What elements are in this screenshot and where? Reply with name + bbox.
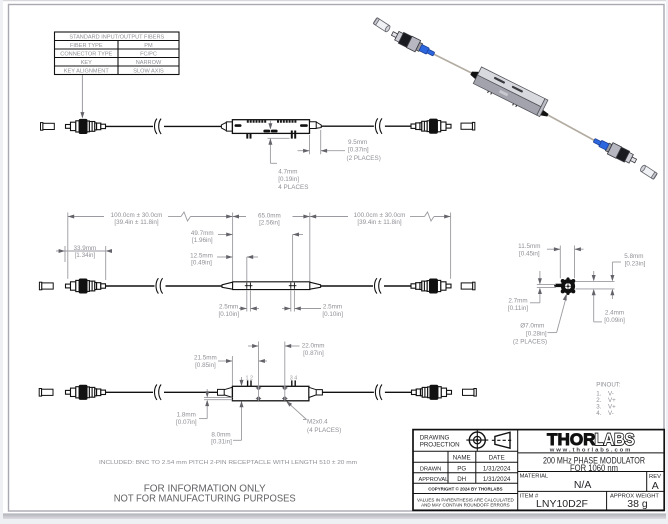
svg-text:100.0cm ± 30.0cm: 100.0cm ± 30.0cm (111, 212, 163, 219)
svg-text:4.7mm: 4.7mm (278, 168, 297, 175)
svg-text:[2.56in]: [2.56in] (259, 220, 280, 227)
svg-text:DRAWN: DRAWN (420, 466, 442, 472)
svg-text:N/A: N/A (574, 479, 592, 491)
svg-text:V-: V- (608, 410, 614, 417)
svg-text:[1.96in]: [1.96in] (192, 237, 213, 244)
svg-text:AND MAY CONTAIN ROUNDOFF ERROR: AND MAY CONTAIN ROUNDOFF ERRORS (421, 503, 510, 508)
svg-text:11.5mm: 11.5mm (518, 243, 540, 250)
svg-text:INCLUDED: BNC TO 2.54 mm PITCH: INCLUDED: BNC TO 2.54 mm PITCH 2-PIN REC… (99, 460, 357, 466)
svg-text:[0.09in]: [0.09in] (604, 317, 625, 324)
svg-text:[0.10in]: [0.10in] (322, 311, 343, 318)
svg-text:21.5mm: 21.5mm (194, 354, 217, 361)
svg-text:MATERIAL: MATERIAL (520, 473, 549, 479)
svg-text:38 g: 38 g (627, 498, 648, 510)
svg-text:PM: PM (144, 43, 153, 49)
svg-text:1/31/2024: 1/31/2024 (483, 465, 511, 472)
svg-text:FIBER TYPE: FIBER TYPE (70, 43, 103, 49)
svg-text:9.5mm: 9.5mm (348, 139, 367, 146)
svg-text:[1.34in]: [1.34in] (75, 252, 96, 259)
svg-text:[0.31in]: [0.31in] (211, 439, 232, 446)
svg-text:PINOUT:: PINOUT: (596, 381, 621, 388)
svg-text:2.5mm: 2.5mm (219, 303, 238, 310)
svg-text:KEY ALIGNMENT: KEY ALIGNMENT (64, 68, 110, 74)
svg-text:[0.45in]: [0.45in] (519, 250, 540, 257)
svg-text:49.7mm: 49.7mm (191, 230, 214, 237)
svg-text:NAME: NAME (453, 454, 471, 461)
svg-text:LABS: LABS (595, 430, 635, 449)
svg-text:2.5mm: 2.5mm (323, 303, 342, 310)
svg-text:3 4: 3 4 (290, 376, 298, 382)
svg-text:[0.19in]: [0.19in] (278, 176, 299, 183)
svg-text:2.4mm: 2.4mm (605, 309, 624, 316)
svg-text:KEY: KEY (81, 60, 92, 66)
svg-text:[0.87in]: [0.87in] (303, 350, 324, 357)
svg-text:[0.28in]: [0.28in] (526, 330, 547, 337)
svg-text:33.9mm: 33.9mm (74, 245, 97, 252)
svg-text:100.0cm ± 30.0cm: 100.0cm ± 30.0cm (354, 212, 406, 219)
svg-text:LNY10D2F: LNY10D2F (536, 498, 588, 510)
svg-text:FC/PC: FC/PC (140, 51, 157, 57)
svg-text:DRAWING: DRAWING (420, 435, 450, 442)
svg-text:STANDARD INPUT/OUTPUT FIBERS: STANDARD INPUT/OUTPUT FIBERS (69, 34, 164, 40)
svg-text:1 2: 1 2 (246, 376, 254, 382)
svg-text:PG: PG (457, 465, 466, 472)
svg-text:PROJECTION: PROJECTION (420, 442, 460, 449)
svg-text:NARROW: NARROW (136, 60, 162, 66)
svg-text:4.: 4. (596, 410, 601, 417)
svg-text:[0.49in]: [0.49in] (191, 259, 212, 266)
svg-text:[0.07in]: [0.07in] (176, 419, 197, 426)
svg-text:[39.4in ± 11.8in]: [39.4in ± 11.8in] (114, 219, 159, 226)
svg-text:(4 PLACES): (4 PLACES) (307, 427, 341, 434)
svg-text:DH: DH (457, 476, 466, 483)
svg-text:FOR 1060 nm: FOR 1060 nm (570, 463, 618, 473)
svg-text:5.8mm: 5.8mm (624, 253, 643, 260)
svg-text:(2 PLACES): (2 PLACES) (347, 155, 381, 162)
svg-text:DATE: DATE (489, 454, 505, 461)
svg-text:12.5mm: 12.5mm (190, 252, 213, 259)
svg-text:M2x0.4: M2x0.4 (307, 419, 328, 426)
svg-text:NOT FOR MANUFACTURING PURPOSES: NOT FOR MANUFACTURING PURPOSES (114, 494, 296, 505)
svg-text:APPROVAL: APPROVAL (419, 477, 449, 483)
svg-text:1.8mm: 1.8mm (177, 411, 196, 418)
svg-text:4 PLACES: 4 PLACES (278, 184, 308, 191)
svg-text:[0.85in]: [0.85in] (195, 362, 216, 369)
svg-text:THOR: THOR (547, 430, 596, 449)
svg-text:A: A (652, 480, 659, 492)
svg-text:Ø7.0mm: Ø7.0mm (520, 323, 544, 330)
svg-text:[0.11in]: [0.11in] (508, 305, 528, 312)
svg-text:[39.4in ± 11.8in]: [39.4in ± 11.8in] (357, 219, 402, 226)
svg-text:22.0mm: 22.0mm (302, 342, 325, 349)
svg-text:[0.37in]: [0.37in] (348, 147, 369, 154)
svg-text:[0.10in]: [0.10in] (218, 311, 239, 318)
svg-text:CONNECTOR TYPE: CONNECTOR TYPE (60, 51, 112, 57)
svg-text:SLOW AXIS: SLOW AXIS (133, 68, 164, 74)
svg-text:8.0mm: 8.0mm (211, 432, 230, 439)
svg-text:www.thorlabs.com: www.thorlabs.com (549, 447, 633, 453)
svg-text:2.7mm: 2.7mm (508, 298, 527, 305)
svg-text:(2 PLACES): (2 PLACES) (513, 338, 547, 345)
svg-text:65.0mm: 65.0mm (258, 213, 281, 220)
svg-text:1/31/2024: 1/31/2024 (483, 476, 511, 483)
svg-text:COPYRIGHT © 2024 BY THORLABS: COPYRIGHT © 2024 BY THORLABS (428, 487, 502, 492)
svg-text:[0.23in]: [0.23in] (625, 261, 646, 268)
